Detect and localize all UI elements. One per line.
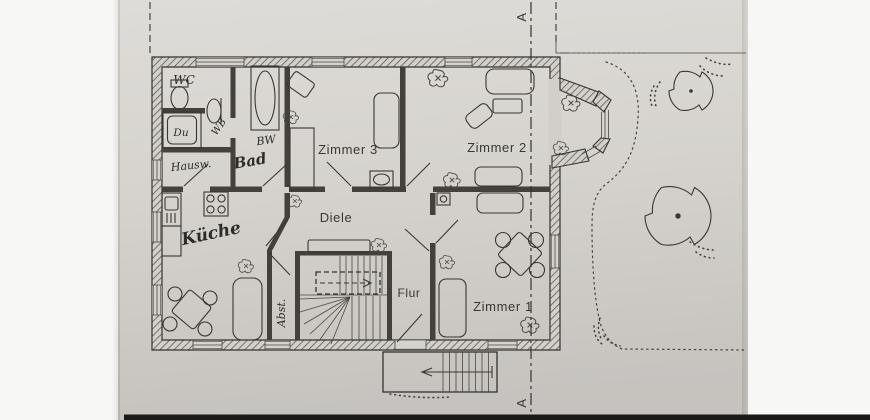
floor-plan-drawing: A A Zimmer 3 Zimmer 2 Zimmer 1 Diele Flu… [0, 0, 870, 420]
section-marker-top: A [514, 12, 529, 21]
label-flur: Flur [397, 286, 420, 300]
label-wc: WC [173, 73, 195, 87]
floor-plan-photo: A A Zimmer 3 Zimmer 2 Zimmer 1 Diele Flu… [0, 0, 870, 420]
label-diele: Diele [320, 210, 353, 225]
section-marker-bottom: A [514, 398, 529, 407]
label-du: Du [172, 127, 188, 139]
label-zimmer2: Zimmer 2 [467, 140, 527, 155]
label-abst: Abst. [275, 299, 288, 329]
label-zimmer1: Zimmer 1 [473, 299, 533, 314]
entrance-opening [395, 340, 426, 349]
photo-bottom-edge [124, 415, 870, 420]
label-zimmer3: Zimmer 3 [318, 142, 378, 157]
